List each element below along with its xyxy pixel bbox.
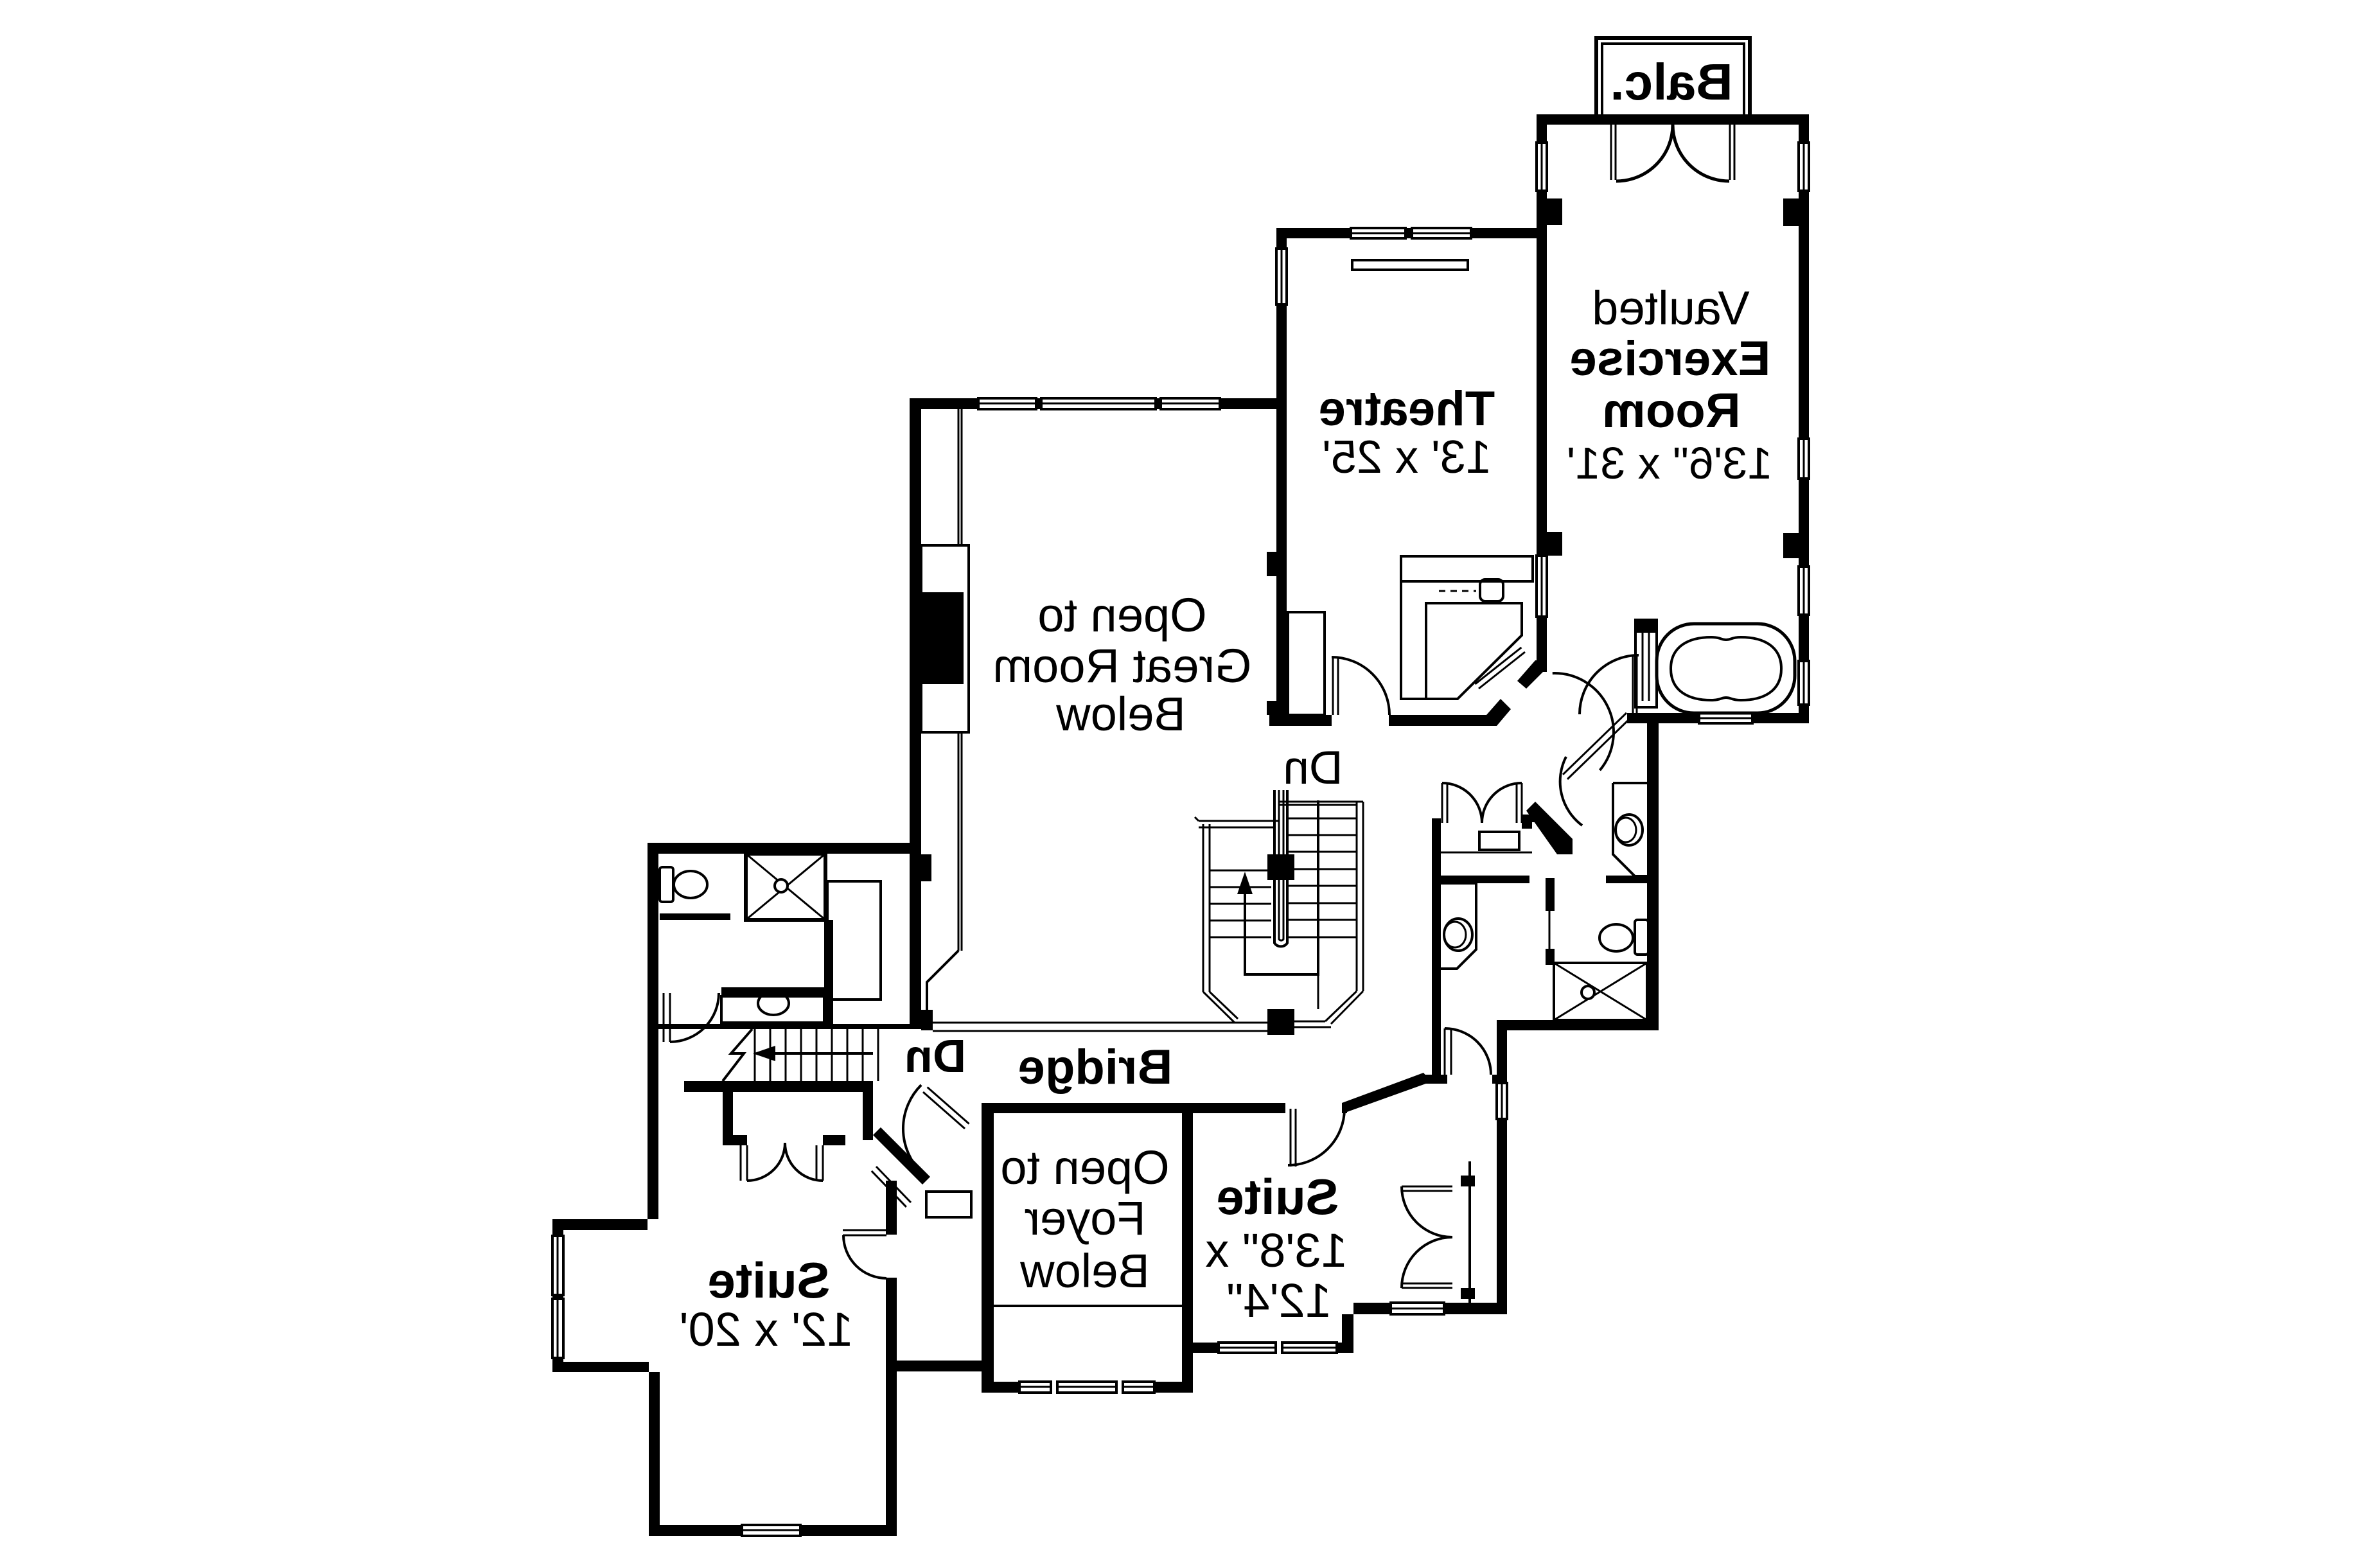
svg-text:12' x 20': 12' x 20' bbox=[680, 1303, 854, 1356]
svg-text:Dn: Dn bbox=[904, 1031, 966, 1082]
svg-text:13'6" x 31': 13'6" x 31' bbox=[1567, 438, 1772, 488]
svg-text:Below: Below bbox=[1020, 1244, 1150, 1298]
svg-text:Vaulted: Vaulted bbox=[1592, 281, 1750, 335]
svg-text:Below: Below bbox=[1056, 687, 1186, 741]
svg-text:Suite: Suite bbox=[708, 1252, 831, 1308]
svg-text:12'4": 12'4" bbox=[1226, 1274, 1332, 1327]
svg-text:Exercise: Exercise bbox=[1570, 331, 1771, 386]
svg-text:Bridge: Bridge bbox=[1018, 1040, 1173, 1095]
svg-text:Balc.: Balc. bbox=[1610, 53, 1732, 110]
svg-text:Theatre: Theatre bbox=[1319, 382, 1495, 436]
svg-text:Dn: Dn bbox=[1283, 742, 1343, 794]
svg-text:Open to: Open to bbox=[1037, 588, 1206, 642]
svg-text:Room: Room bbox=[1602, 383, 1740, 438]
svg-text:Foyer: Foyer bbox=[1024, 1192, 1145, 1245]
svg-text:Great Room: Great Room bbox=[992, 639, 1251, 692]
svg-text:13' x 25': 13' x 25' bbox=[1322, 432, 1492, 483]
svg-text:13'8" x: 13'8" x bbox=[1205, 1224, 1347, 1277]
svg-text:Suite: Suite bbox=[1217, 1168, 1339, 1225]
svg-text:Open to: Open to bbox=[1000, 1141, 1169, 1194]
